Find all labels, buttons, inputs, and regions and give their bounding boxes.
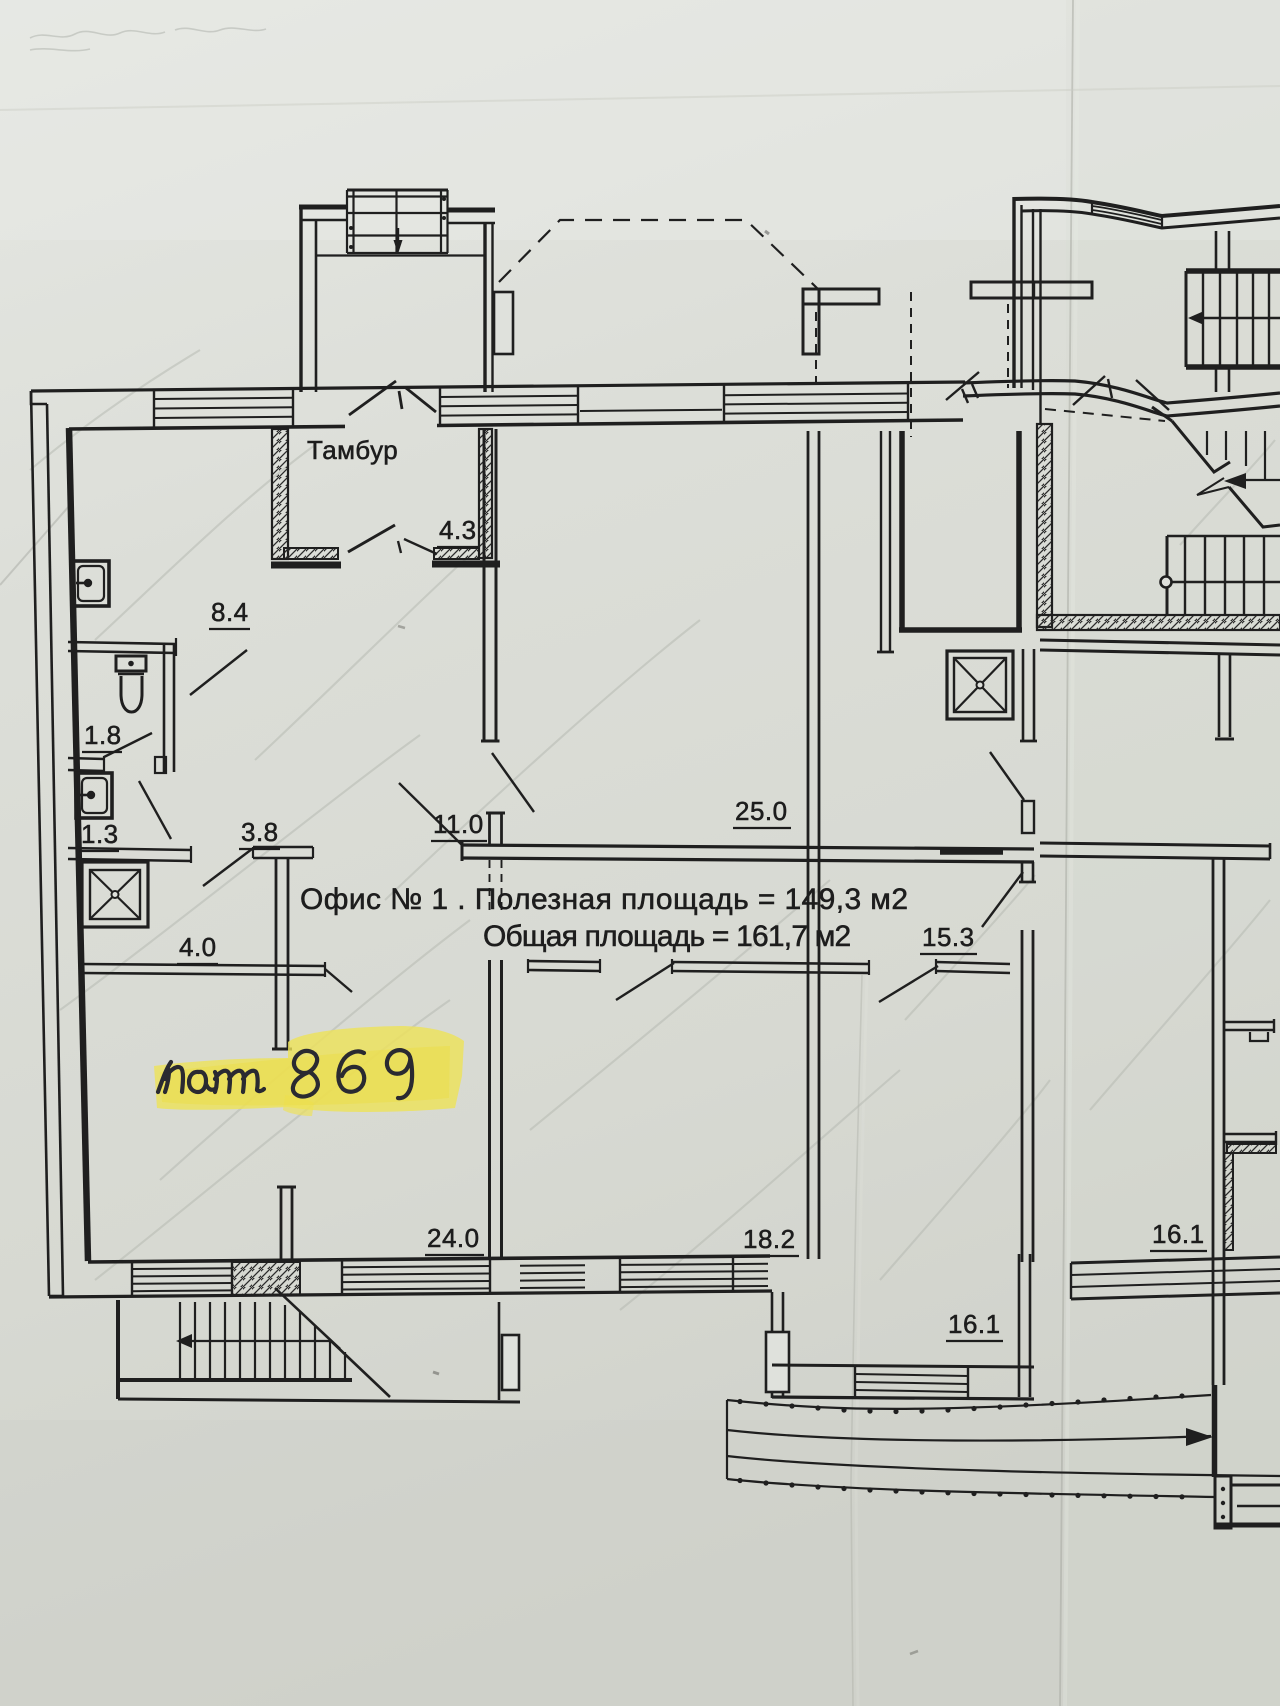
svg-text:Офис № 1 . Полезная площадь =: Офис № 1 . Полезная площадь = 149,3 м2 <box>300 883 908 916</box>
svg-text:15.3: 15.3 <box>922 922 975 952</box>
svg-text:8.4: 8.4 <box>211 597 249 627</box>
svg-text:25.0: 25.0 <box>735 796 788 826</box>
svg-text:18.2: 18.2 <box>743 1224 796 1254</box>
svg-text:Тамбур: Тамбур <box>307 435 398 465</box>
svg-text:4.0: 4.0 <box>179 932 217 962</box>
svg-text:16.1: 16.1 <box>1152 1219 1205 1249</box>
svg-text:1.8: 1.8 <box>84 720 122 750</box>
svg-text:1.3: 1.3 <box>81 819 119 849</box>
svg-text:16.1: 16.1 <box>948 1309 1001 1339</box>
svg-text:3.8: 3.8 <box>241 817 279 847</box>
svg-text:11.0: 11.0 <box>433 809 484 839</box>
svg-text:Общая площадь = 161,7 м2: Общая площадь = 161,7 м2 <box>483 920 851 953</box>
svg-text:4.3: 4.3 <box>439 515 477 545</box>
svg-text:24.0: 24.0 <box>427 1223 480 1253</box>
